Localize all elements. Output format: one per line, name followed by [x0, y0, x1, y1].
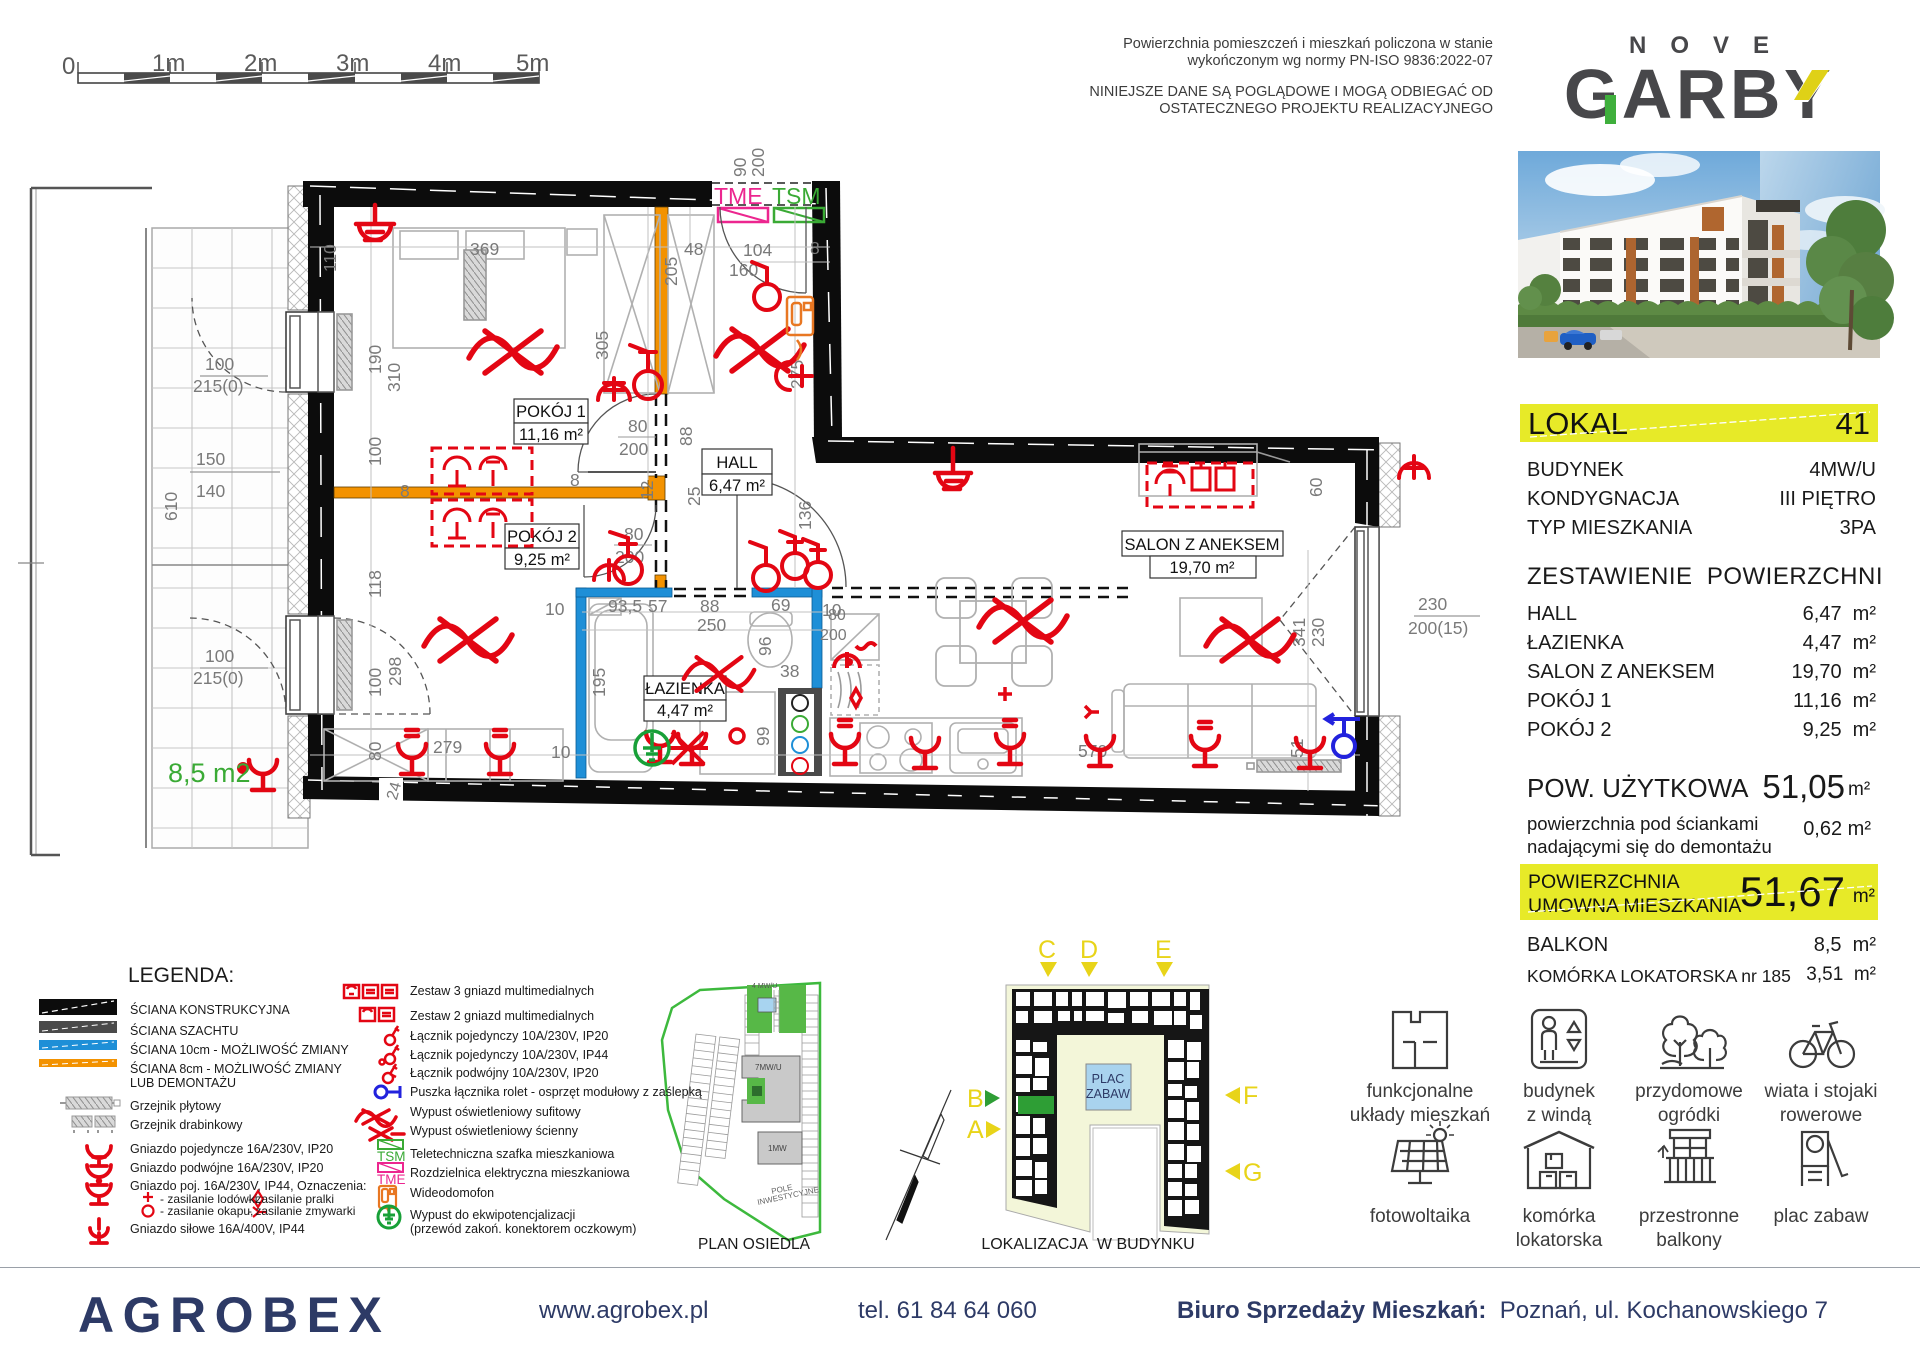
svg-text:69: 69 [771, 595, 790, 615]
svg-text:ŁAZIENKA: ŁAZIENKA [645, 680, 725, 698]
svg-text:100: 100 [365, 668, 385, 697]
svg-text:B: B [967, 1085, 984, 1113]
svg-text:TSM: TSM [772, 183, 821, 209]
svg-text:57: 57 [648, 596, 667, 616]
svg-text:12: 12 [637, 481, 657, 500]
svg-text:215(0): 215(0) [193, 668, 244, 688]
svg-text:104: 104 [743, 240, 772, 260]
svg-text:11,16 m²: 11,16 m² [519, 426, 583, 444]
svg-text:195: 195 [589, 668, 609, 697]
svg-text:298: 298 [385, 657, 405, 686]
svg-text:7MW/U: 7MW/U [755, 1063, 782, 1072]
svg-text:80: 80 [365, 741, 385, 761]
svg-text:HALL: HALL [716, 454, 757, 472]
svg-text:10: 10 [545, 599, 565, 619]
svg-text:100: 100 [365, 437, 385, 466]
svg-text:610: 610 [161, 492, 181, 521]
svg-text:90: 90 [730, 157, 750, 177]
svg-text:0: 0 [62, 53, 75, 80]
svg-text:A: A [967, 1116, 984, 1144]
svg-text:POKÓJ 2: POKÓJ 2 [507, 527, 577, 546]
svg-text:8,5 m2: 8,5 m2 [168, 758, 251, 788]
svg-text:369: 369 [470, 239, 499, 259]
svg-text:93,5: 93,5 [608, 596, 642, 616]
svg-text:9,25 m²: 9,25 m² [514, 551, 570, 569]
svg-text:8: 8 [810, 238, 820, 258]
svg-text:110: 110 [320, 244, 340, 272]
svg-text:F: F [1243, 1082, 1258, 1110]
svg-text:C: C [1038, 936, 1056, 964]
svg-text:230: 230 [1418, 594, 1447, 614]
svg-text:6,47 m²: 6,47 m² [709, 477, 765, 495]
svg-text:96: 96 [755, 637, 775, 656]
svg-text:SALON Z ANEKSEM: SALON Z ANEKSEM [1125, 536, 1280, 554]
svg-text:190: 190 [365, 345, 385, 374]
svg-text:100: 100 [205, 646, 234, 666]
svg-text:200: 200 [748, 148, 768, 177]
svg-text:230: 230 [1308, 618, 1328, 647]
svg-text:19,70 m²: 19,70 m² [1169, 559, 1235, 577]
svg-text:POKÓJ 1: POKÓJ 1 [516, 402, 586, 421]
svg-text:99: 99 [753, 727, 773, 746]
svg-text:ZABAW: ZABAW [1086, 1087, 1130, 1101]
svg-text:200: 200 [820, 627, 847, 644]
svg-text:250: 250 [697, 615, 726, 635]
svg-text:60: 60 [1306, 477, 1326, 497]
svg-text:E: E [1155, 936, 1172, 964]
svg-text:1MW: 1MW [768, 1144, 787, 1153]
svg-text:88: 88 [700, 596, 719, 616]
svg-text:140: 140 [196, 481, 225, 501]
svg-text:4 MW/U: 4 MW/U [752, 983, 777, 990]
svg-text:200(15): 200(15) [1408, 618, 1468, 638]
svg-text:4,47 m²: 4,47 m² [657, 702, 713, 720]
svg-text:205: 205 [661, 257, 681, 286]
svg-text:D: D [1080, 936, 1098, 964]
svg-text:PLAC: PLAC [1092, 1072, 1125, 1086]
svg-text:136: 136 [795, 501, 815, 530]
svg-text:TSM: TSM [377, 1149, 406, 1164]
svg-text:118: 118 [365, 570, 385, 598]
svg-text:80: 80 [628, 416, 648, 436]
svg-text:279: 279 [433, 737, 462, 757]
svg-text:TME: TME [714, 183, 763, 209]
svg-text:305: 305 [592, 331, 612, 360]
svg-text:80: 80 [828, 607, 846, 624]
svg-text:48: 48 [684, 239, 703, 259]
svg-text:215(0): 215(0) [193, 376, 244, 396]
svg-text:200: 200 [619, 439, 648, 459]
svg-text:TME: TME [377, 1172, 406, 1187]
svg-text:8: 8 [570, 470, 580, 490]
svg-text:G: G [1243, 1159, 1262, 1187]
svg-text:150: 150 [196, 449, 225, 469]
svg-text:310: 310 [384, 363, 404, 392]
svg-text:88: 88 [676, 427, 696, 446]
svg-text:38: 38 [780, 661, 799, 681]
svg-text:10: 10 [551, 742, 571, 762]
svg-text:25: 25 [684, 487, 704, 506]
svg-text:100: 100 [205, 354, 234, 374]
svg-text:8: 8 [400, 481, 410, 501]
